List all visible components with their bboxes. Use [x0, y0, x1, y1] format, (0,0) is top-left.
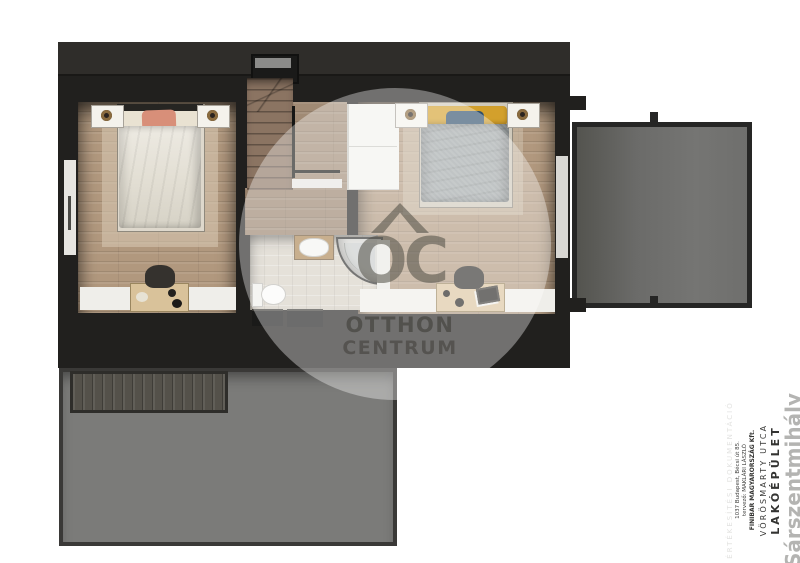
desk-item	[172, 299, 182, 308]
watermark-brand-line1: OTTHON	[335, 313, 465, 337]
balcony-railing-post	[650, 112, 658, 124]
table-lamp	[207, 110, 218, 121]
bed-left-duvet	[119, 126, 201, 228]
floor-plan-scene: OC OTTHON CENTRUM ÉRTÉKESÍTÉSI DOKUMENTÁ…	[0, 0, 800, 563]
staircase-winder-steps	[247, 78, 293, 112]
wall-notch	[570, 298, 586, 312]
street-label: VÖRÖSMARTY UTCA	[759, 424, 768, 537]
table-lamp	[101, 110, 112, 121]
designer-label: tervező: MAKLÁRI LÁSZLÓ	[742, 444, 748, 516]
stair-roof-window-glass	[255, 58, 291, 68]
project-title: Sárszentmihály	[783, 393, 800, 563]
balcony-terrace	[572, 122, 752, 308]
pergola-strip	[70, 371, 228, 413]
balcony-railing-post	[650, 296, 658, 308]
roof-eave-band	[58, 42, 570, 76]
window-handle	[68, 196, 71, 230]
desk-chair	[145, 265, 175, 288]
balcony-door	[556, 156, 568, 258]
watermark-brand-line2: CENTRUM	[335, 337, 465, 359]
company-label: FINIBAR MAGYARORSZÁG Kft.	[749, 430, 756, 530]
watermark-monogram: OC	[337, 226, 463, 295]
wall-notch	[570, 96, 586, 110]
table-lamp	[517, 109, 528, 120]
title-block: ÉRTÉKESÍTÉSI DOKUMENTÁCIÓ 1037 Budapest,…	[717, 412, 800, 548]
address-label: 1037 Budapest, Bécsi út 85.	[735, 441, 741, 519]
desk-item	[136, 292, 148, 302]
desk-item	[168, 289, 176, 297]
doc-type-label: ÉRTÉKESÍTÉSI DOKUMENTÁCIÓ	[726, 401, 734, 558]
